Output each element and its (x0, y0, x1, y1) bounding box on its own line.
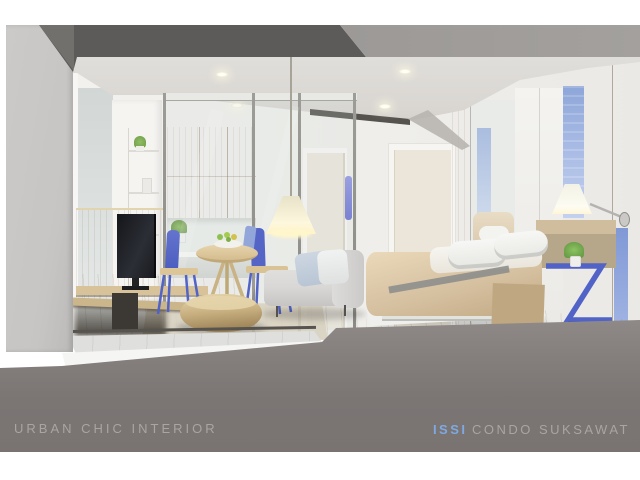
footer-project-label: URBAN CHIC INTERIOR (14, 421, 218, 436)
partition-top-rail (163, 93, 357, 101)
window-strip-right (614, 228, 628, 324)
downlight (379, 104, 391, 109)
shelf-line (129, 150, 159, 152)
side-table-plant-pot (570, 256, 581, 267)
pendant-cord (290, 57, 292, 197)
downlight (399, 69, 411, 74)
partition-handle (345, 176, 352, 220)
pendant-glow (270, 229, 312, 238)
interior-rendering: URBAN CHIC INTERIOR ISSI CONDO SUKSAWAT (0, 0, 640, 480)
footer-brand-suffix: CONDO SUKSAWAT (472, 422, 630, 437)
top-band-mid (340, 25, 640, 57)
shelf-vase (142, 178, 152, 194)
fruit (226, 237, 231, 242)
footer-brand-block: ISSI CONDO SUKSAWAT (433, 421, 630, 439)
sofa-leg (276, 306, 278, 317)
footer-brand: ISSI (433, 422, 468, 437)
fruit (217, 234, 223, 240)
downlight (216, 72, 228, 77)
tv-stand-base (122, 286, 149, 290)
sofa-leg (344, 305, 346, 316)
top-margin (0, 0, 640, 25)
left-cutaway-wall (6, 25, 73, 352)
tv-screen (117, 214, 156, 278)
side-table (540, 258, 616, 328)
tv-console-support (112, 293, 138, 331)
mirror-sky-reflection (477, 128, 491, 216)
sofa-pillow-white (317, 249, 350, 285)
shelf-pot (136, 146, 144, 151)
fruit (231, 234, 237, 240)
wall-lamp-mount (619, 212, 630, 227)
pouf-top (186, 296, 256, 310)
